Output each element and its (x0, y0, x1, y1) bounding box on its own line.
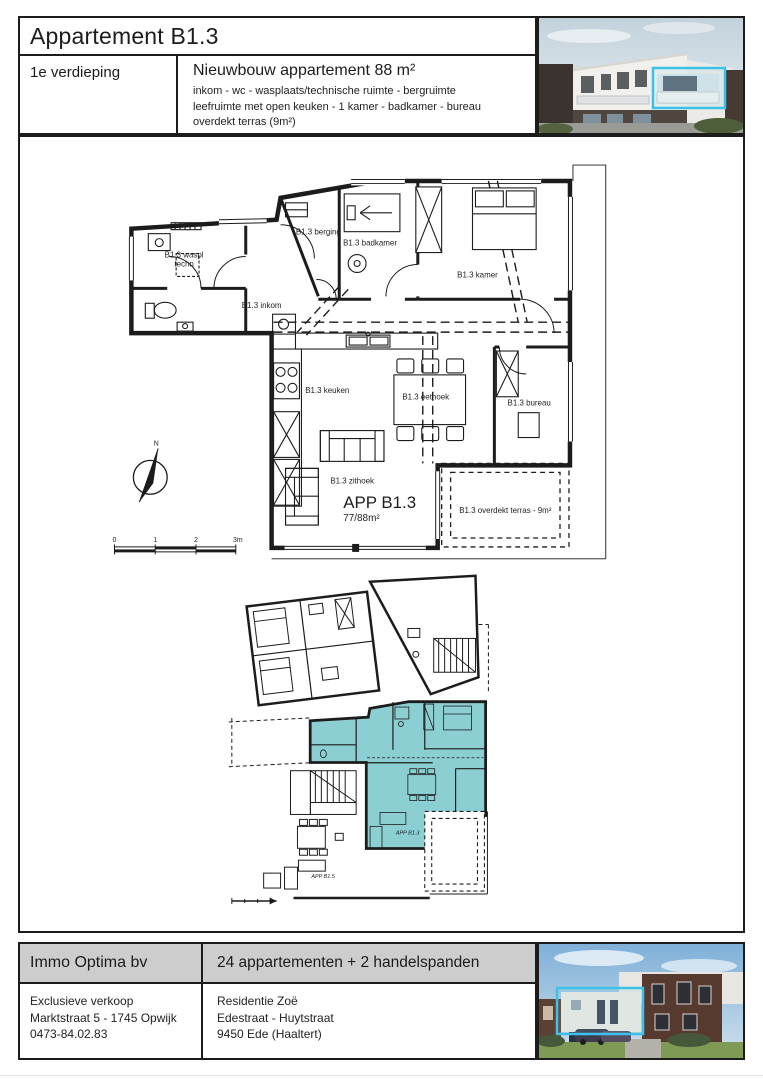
floorplan-box: B1.3 waspl techn B1.3 inkom B1.3 berging… (18, 135, 745, 933)
scale-tick-1: 1 (153, 537, 157, 544)
company-name: Immo Optima bv (20, 944, 203, 982)
laundry-wc-furniture (145, 223, 201, 331)
description-line: overdekt terras (9m²) (193, 115, 535, 131)
residence-address: Residentie Zoë Edestraat - Huytstraat 94… (203, 984, 535, 1060)
cloud (643, 22, 715, 34)
header-box: Appartement B1.3 1e verdieping Nieuwbouw… (18, 16, 537, 135)
neighbor-unit-a (247, 592, 380, 705)
room-label-waspl: B1.3 waspl (165, 251, 204, 260)
project-summary: 24 appartementen + 2 handelspanden (203, 944, 535, 982)
unit-highlight-rect (653, 68, 725, 108)
room-label-zithoek: B1.3 zithoek (330, 476, 374, 485)
bedroom-furniture (416, 187, 536, 253)
sales-line: Exclusieve verkoop (30, 993, 201, 1010)
header-description: Nieuwbouw appartement 88 m² inkom - wc -… (178, 56, 535, 135)
main-floorplan: B1.3 waspl techn B1.3 inkom B1.3 berging… (113, 165, 606, 559)
site-plan: APP B1.3 APP B1.5 (229, 576, 489, 905)
building-photo-top (537, 16, 745, 135)
site-stairs (291, 771, 357, 815)
room-label-kamer: B1.3 kamer (457, 270, 498, 279)
compass: N (133, 440, 167, 502)
sales-line: Marktstraat 5 - 1745 Opwijk (30, 1010, 201, 1027)
scale-tick-2: 2 (194, 537, 198, 544)
stairwell (434, 638, 476, 672)
cloud (661, 959, 737, 973)
building-photo-bottom (537, 942, 745, 1060)
neighbor-unit-b (370, 576, 478, 694)
page-title: Appartement B1.3 (20, 18, 535, 56)
room-label-inkom: B1.3 inkom (242, 301, 282, 310)
highlighted-unit-terrace (425, 811, 485, 891)
page-bottom-line (0, 1075, 763, 1076)
sales-line: 0473-84.02.83 (30, 1026, 201, 1043)
residence-line: Edestraat - Huytstraat (217, 1010, 535, 1027)
building-photo-top-art (539, 18, 743, 133)
room-label-keuken: B1.3 keuken (305, 386, 349, 395)
apartment-label: APP B1.3 (343, 493, 416, 512)
scale-tick-0: 0 (113, 537, 117, 544)
plan-sheet: Appartement B1.3 1e verdieping Nieuwbouw… (0, 0, 763, 1080)
site-neighbor-label: APP B1.5 (310, 874, 335, 880)
room-label-bureau: B1.3 bureau (508, 399, 551, 408)
cloud (554, 950, 644, 966)
sales-contact: Exclusieve verkoop Marktstraat 5 - 1745 … (20, 984, 203, 1060)
site-scale-bar (232, 897, 277, 904)
floor-label: 1e verdieping (20, 56, 178, 135)
header-row2: 1e verdieping Nieuwbouw appartement 88 m… (20, 56, 535, 135)
room-label-eethoek: B1.3 eethoek (402, 393, 449, 402)
residence-line: 9450 Ede (Haaltert) (217, 1026, 535, 1043)
storage-furniture (286, 203, 308, 217)
floorplan-svg: B1.3 waspl techn B1.3 inkom B1.3 berging… (20, 137, 743, 931)
residence-line: Residentie Zoë (217, 993, 535, 1010)
cloud (547, 29, 631, 43)
compass-north-label: N (154, 440, 159, 447)
room-label-waspl2: techn (174, 259, 193, 268)
room-label-berging: B1.3 berging (296, 228, 341, 237)
footer-info: Exclusieve verkoop Marktstraat 5 - 1745 … (20, 984, 535, 1060)
description-line: leefruimte met open keuken - 1 kamer - b… (193, 100, 535, 116)
unit-highlight-rect (557, 988, 643, 1034)
footer-box: Immo Optima bv 24 appartementen + 2 hand… (18, 942, 537, 1060)
office-furniture (496, 351, 539, 438)
apartment-subtitle: Nieuwbouw appartement 88 m² (193, 62, 535, 80)
building-photo-bottom-art (539, 944, 743, 1058)
bathroom-furniture (344, 194, 400, 273)
site-unit-label: APP B1.3 (395, 830, 419, 836)
apartment-label-group: APP B1.3 77/88m² (343, 493, 416, 524)
footer-band: Immo Optima bv 24 appartementen + 2 hand… (20, 944, 535, 984)
description-line: inkom - wc - wasplaats/technische ruimte… (193, 84, 535, 100)
room-label-badkamer: B1.3 badkamer (343, 239, 397, 248)
scale-tick-3: 3m (233, 537, 243, 544)
scale-bar: 0 1 2 3m (113, 537, 243, 554)
terrace-label: B1.3 overdekt terras - 9m² (459, 506, 552, 515)
apartment-area: 77/88m² (343, 513, 380, 524)
